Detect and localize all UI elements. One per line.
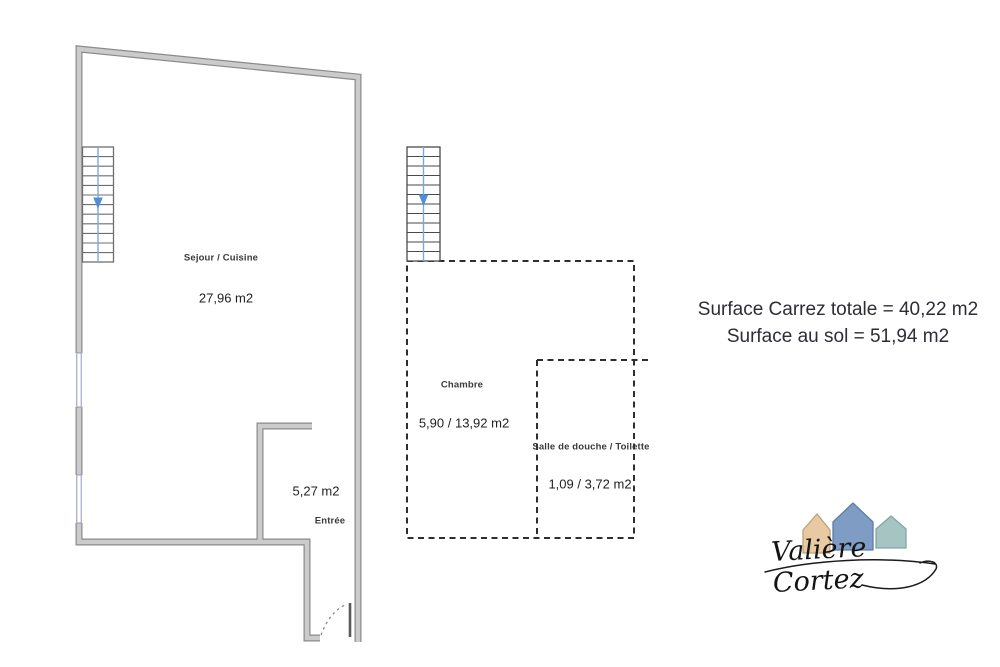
surface-carrez-line: Surface Carrez totale = 40,22 m2 — [688, 296, 988, 323]
room-label-sejour-cuisine: Sejour / Cuisine — [184, 253, 258, 264]
room-area-salle-de-douche: 1,09 / 3,72 m2 — [548, 477, 631, 492]
left-staircase — [83, 147, 114, 262]
left-plan-walls — [79, 49, 358, 642]
logo-name: Valière Cortez — [770, 529, 925, 599]
surface-sol-line: Surface au sol = 51,94 m2 — [688, 323, 988, 350]
room-area-sejour-cuisine: 27,96 m2 — [199, 291, 253, 306]
entrance-door — [321, 603, 350, 637]
room-area-entree: 5,27 m2 — [293, 484, 340, 499]
floorplan-page: Sejour / Cuisine 27,96 m2 5,27 m2 Entrée… — [0, 0, 1000, 667]
room-area-chambre: 5,90 / 13,92 m2 — [419, 416, 509, 431]
surface-summary: Surface Carrez totale = 40,22 m2 Surface… — [688, 296, 988, 350]
room-label-salle-de-douche: Salle de douche / Toilette — [532, 442, 649, 453]
room-label-chambre: Chambre — [441, 380, 483, 391]
middle-staircase — [407, 147, 440, 261]
room-label-entree: Entrée — [315, 516, 345, 527]
door-swing-arc — [321, 604, 347, 635]
middle-plan-outline — [407, 261, 650, 538]
